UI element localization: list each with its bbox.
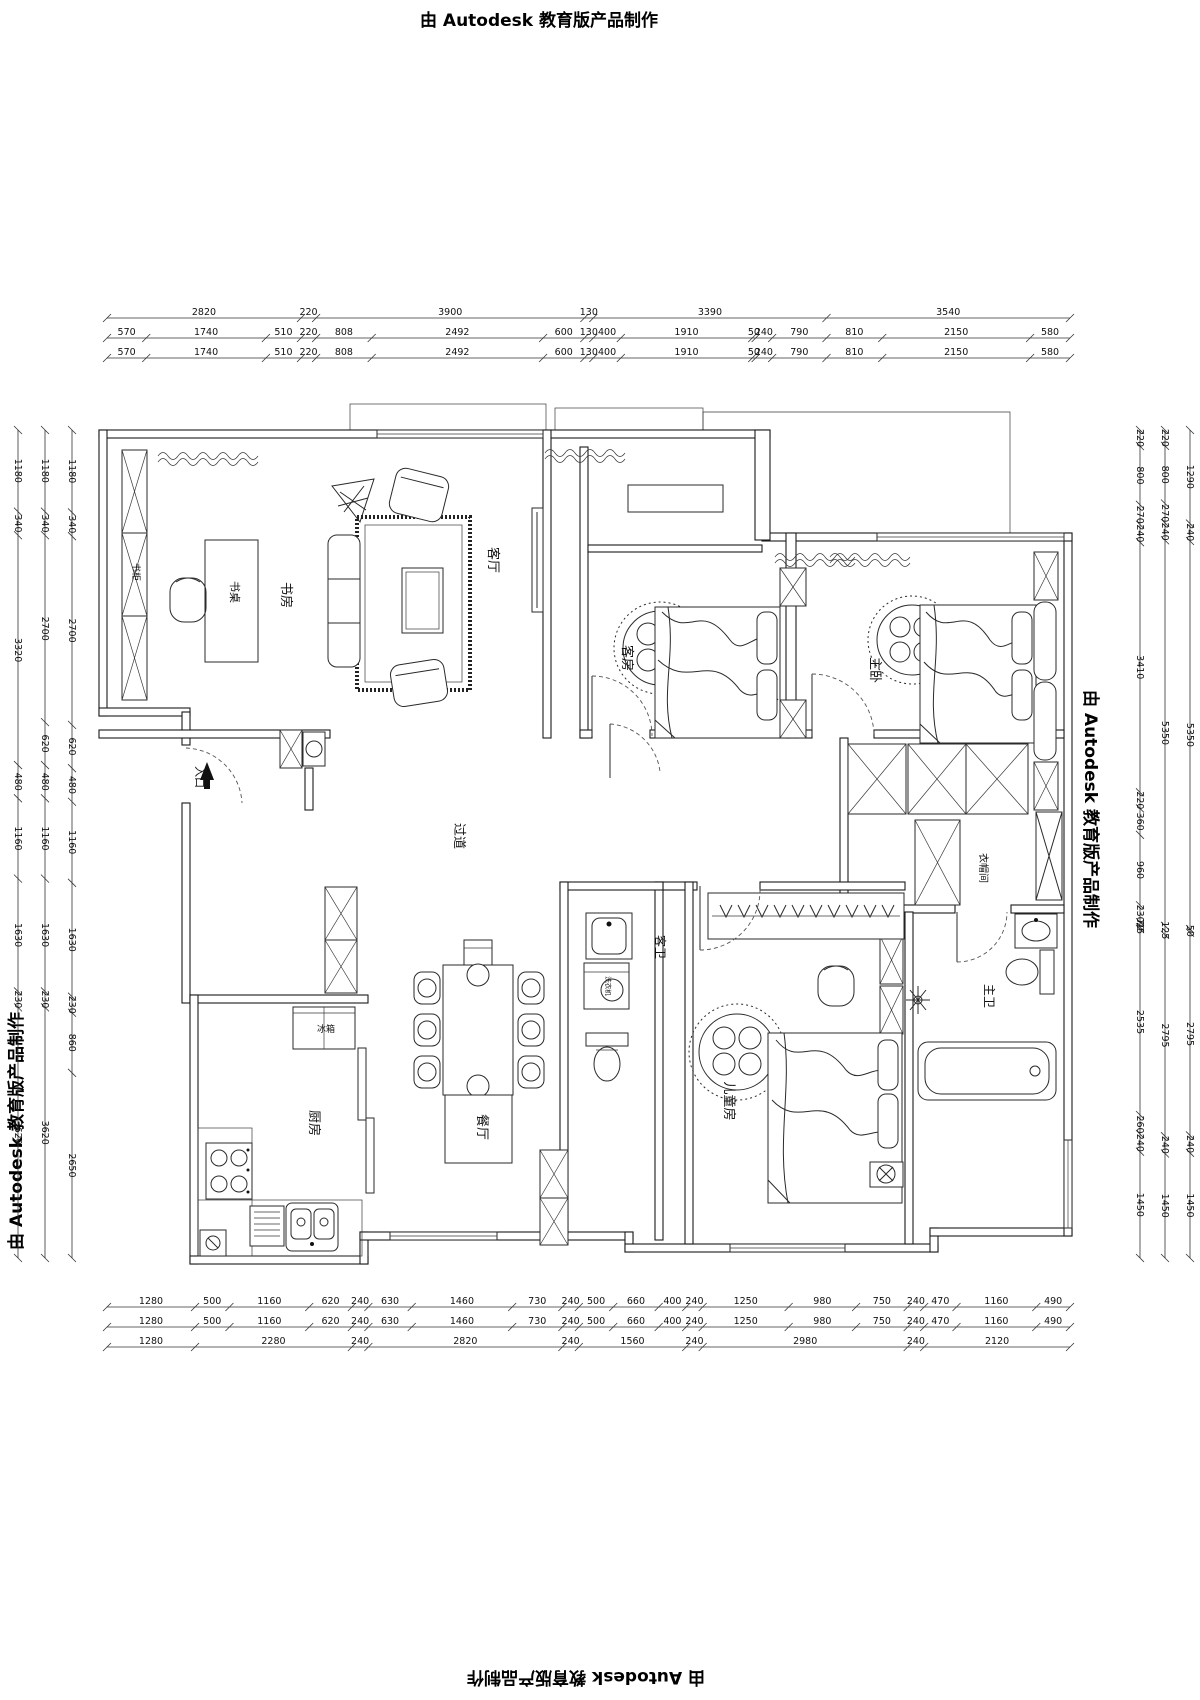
dim-label: 490 xyxy=(1044,1316,1062,1327)
dim-label: 620 xyxy=(39,735,50,753)
dim-label: 240 xyxy=(351,1296,369,1307)
dim-label: 480 xyxy=(39,773,50,791)
dim-label: 1910 xyxy=(674,327,698,338)
dim-label: 1250 xyxy=(734,1296,758,1307)
dim-label: 125 xyxy=(1159,921,1170,939)
dim-label: 2795 xyxy=(1159,1023,1170,1047)
dim-label: 1450 xyxy=(1159,1194,1170,1218)
dim-label: 400 xyxy=(663,1316,681,1327)
dim-label: 360 xyxy=(1134,813,1145,831)
dim-label: 240 xyxy=(562,1336,580,1347)
dimension-chain-4: 1280500116062024063014607302405006604002… xyxy=(103,1316,1074,1331)
dim-label: 470 xyxy=(931,1296,949,1307)
dim-label: 1180 xyxy=(39,459,50,483)
dim-label: 630 xyxy=(381,1296,399,1307)
room-label-desk: 书桌 xyxy=(228,581,241,603)
dim-label: 490 xyxy=(1044,1296,1062,1307)
dim-label: 240 xyxy=(1159,523,1170,541)
corner-unit xyxy=(200,1230,226,1256)
dim-label: 960 xyxy=(1134,861,1145,879)
dim-label: 1280 xyxy=(139,1296,163,1307)
dim-label: 260 xyxy=(1134,1115,1145,1133)
room-label-washer: 洗衣机 xyxy=(604,976,613,996)
dim-label: 220 xyxy=(1134,791,1145,809)
dim-label: 400 xyxy=(598,347,616,358)
bathtub xyxy=(918,1042,1056,1100)
dim-label: 480 xyxy=(12,773,23,791)
dim-label: 220 xyxy=(1134,429,1145,447)
room-label-kids: 儿童房 xyxy=(721,1081,737,1120)
dim-label: 270 xyxy=(1159,504,1170,522)
dim-label: 500 xyxy=(587,1316,605,1327)
dim-label: 2150 xyxy=(944,347,968,358)
dim-label: 240 xyxy=(1134,524,1145,542)
dim-label: 3410 xyxy=(1134,655,1145,679)
dim-label: 810 xyxy=(845,347,863,358)
dim-label: 1460 xyxy=(450,1296,474,1307)
dim-label: 800 xyxy=(1134,466,1145,484)
stove xyxy=(206,1143,252,1199)
kids-room-furniture xyxy=(689,893,904,1203)
dim-label: 2795 xyxy=(1184,1022,1195,1046)
dim-label: 240 xyxy=(755,327,773,338)
dim-label: 220 xyxy=(299,347,317,358)
dim-label: 1180 xyxy=(12,459,23,483)
dim-label: 1450 xyxy=(1134,1193,1145,1217)
bay-outlines xyxy=(350,404,1010,533)
room-label-bookcase: 书柜 xyxy=(130,563,142,581)
floor-plan-canvas: 2820220390013033903540570174051022080824… xyxy=(0,0,1200,1700)
room-label-study: 书房 xyxy=(278,582,294,608)
dim-label: 230 xyxy=(66,996,77,1014)
living-furniture xyxy=(328,466,543,708)
dim-label: 240 xyxy=(562,1296,580,1307)
dim-label: 1180 xyxy=(66,459,77,483)
dim-label: 1250 xyxy=(734,1316,758,1327)
dim-label: 980 xyxy=(813,1316,831,1327)
dim-label: 620 xyxy=(66,737,77,755)
dim-label: 1630 xyxy=(66,928,77,952)
dim-label: 240 xyxy=(1134,1134,1145,1152)
dim-label: 1740 xyxy=(194,347,218,358)
dim-label: 1450 xyxy=(1184,1193,1195,1217)
dim-label: 600 xyxy=(555,347,573,358)
dim-label: 500 xyxy=(587,1296,605,1307)
dim-label: 730 xyxy=(528,1316,546,1327)
dim-label: 2492 xyxy=(445,327,469,338)
dim-label: 620 xyxy=(321,1316,339,1327)
dim-label: 730 xyxy=(528,1296,546,1307)
dim-label: 2650 xyxy=(66,1153,77,1177)
dimension-chain-5: 128022802402820240156024029802402120 xyxy=(103,1336,1074,1351)
dim-label: 130 xyxy=(580,327,598,338)
dim-label: 808 xyxy=(335,347,353,358)
dim-label: 500 xyxy=(203,1316,221,1327)
room-label-guest-bath: 客卫 xyxy=(653,935,668,959)
dimension-chain-3: 1280500116062024063014607302405006604002… xyxy=(103,1296,1074,1311)
dimension-chain-2: 5701740510220808249260013040019105024079… xyxy=(103,347,1074,362)
dim-label: 50 xyxy=(1184,925,1195,937)
dim-label: 510 xyxy=(274,347,292,358)
dim-label: 1740 xyxy=(194,327,218,338)
dim-label: 240 xyxy=(1184,1135,1195,1153)
dim-label: 230 xyxy=(12,990,23,1008)
dim-label: 860 xyxy=(66,1034,77,1052)
dim-label: 580 xyxy=(1041,347,1059,358)
study-furniture xyxy=(170,540,258,662)
washbasin xyxy=(586,913,632,959)
washbasin xyxy=(1015,914,1057,948)
dim-label: 240 xyxy=(562,1316,580,1327)
dim-label: 1160 xyxy=(984,1296,1008,1307)
dimension-chain-10: 220800270240535012527952401450 xyxy=(1159,426,1170,1262)
dim-label: 240 xyxy=(1184,523,1195,541)
kitchen-furniture xyxy=(198,1007,374,1256)
room-label-entry: 入口 xyxy=(193,766,206,788)
dim-label: 480 xyxy=(66,776,77,794)
guest-bath-fixtures xyxy=(584,913,632,1081)
dim-label: 750 xyxy=(873,1296,891,1307)
dim-label: 130 xyxy=(580,307,598,318)
dim-label: 1160 xyxy=(66,830,77,854)
dim-label: 470 xyxy=(931,1316,949,1327)
dim-label: 240 xyxy=(907,1336,925,1347)
dim-label: 220 xyxy=(1159,429,1170,447)
dim-label: 240 xyxy=(907,1296,925,1307)
sliding-door xyxy=(358,1048,374,1193)
dimension-chain-1: 5701740510220808249260013040019105024079… xyxy=(103,327,1074,342)
dim-label: 620 xyxy=(321,1296,339,1307)
room-label-guest: 客房 xyxy=(619,645,635,671)
wardrobe xyxy=(708,893,904,939)
dimension-chain-11: 129024053505027952401450 xyxy=(1184,426,1195,1262)
dim-label: 130 xyxy=(580,347,598,358)
hatch-boxes xyxy=(122,450,1058,1245)
dim-label: 580 xyxy=(1041,327,1059,338)
master-bath-fixtures xyxy=(906,914,1057,1100)
dim-label: 400 xyxy=(663,1296,681,1307)
dim-label: 3390 xyxy=(698,307,722,318)
dim-label: 510 xyxy=(274,327,292,338)
dim-label: 2700 xyxy=(39,617,50,641)
sink xyxy=(286,1203,338,1251)
dim-label: 240 xyxy=(685,1336,703,1347)
toilet xyxy=(586,1033,628,1081)
dim-label: 3620 xyxy=(12,1121,23,1145)
dim-label: 1160 xyxy=(39,826,50,850)
room-label-living: 客厅 xyxy=(485,547,501,573)
dim-label: 750 xyxy=(873,1316,891,1327)
room-label-master: 主卧 xyxy=(867,657,882,683)
dim-label: 630 xyxy=(381,1316,399,1327)
room-label-master-bath: 主卫 xyxy=(982,984,996,1008)
room-label-fridge: 冰箱 xyxy=(317,1023,335,1035)
room-label-dining: 餐厅 xyxy=(474,1114,490,1140)
dim-label: 1630 xyxy=(39,923,50,947)
dim-label: 340 xyxy=(66,515,77,533)
dim-label: 1630 xyxy=(12,923,23,947)
dim-label: 25 xyxy=(1134,922,1145,934)
dimension-chain-7: 11803402700620480116016302303620 xyxy=(39,426,50,1262)
dim-label: 570 xyxy=(118,347,136,358)
dim-label: 240 xyxy=(351,1336,369,1347)
dim-label: 240 xyxy=(685,1316,703,1327)
dim-label: 1280 xyxy=(139,1316,163,1327)
dim-label: 800 xyxy=(1159,466,1170,484)
room-label-corridor: 过道 xyxy=(451,823,466,849)
dim-label: 2980 xyxy=(793,1336,817,1347)
dim-label: 240 xyxy=(1159,1136,1170,1154)
dim-label: 1290 xyxy=(1184,465,1195,489)
dim-label: 1160 xyxy=(984,1316,1008,1327)
dim-label: 1280 xyxy=(139,1336,163,1347)
dim-label: 660 xyxy=(627,1316,645,1327)
dim-label: 1910 xyxy=(674,347,698,358)
dim-label: 1160 xyxy=(12,826,23,850)
dim-label: 5350 xyxy=(1184,723,1195,747)
dim-label: 2820 xyxy=(192,307,216,318)
dimension-chain-6: 11803402700620480116016302308602650 xyxy=(66,426,77,1262)
dim-label: 2150 xyxy=(944,327,968,338)
dim-label: 570 xyxy=(118,327,136,338)
guest-balcony-cabinet xyxy=(628,485,723,512)
dim-label: 3320 xyxy=(12,638,23,662)
dim-label: 340 xyxy=(12,514,23,532)
dimension-chain-8: 11803403320480116016302303620 xyxy=(12,426,23,1262)
dim-label: 1460 xyxy=(450,1316,474,1327)
dim-label: 2280 xyxy=(261,1336,285,1347)
dim-label: 2700 xyxy=(66,618,77,642)
dim-label: 790 xyxy=(790,347,808,358)
dim-label: 2535 xyxy=(1134,1010,1145,1034)
dim-label: 660 xyxy=(627,1296,645,1307)
cutting-board xyxy=(250,1206,284,1246)
toilet xyxy=(1006,950,1054,994)
dim-label: 3900 xyxy=(438,307,462,318)
guest-bed xyxy=(614,602,780,738)
dim-label: 5350 xyxy=(1159,721,1170,745)
dim-label: 240 xyxy=(907,1316,925,1327)
dim-label: 240 xyxy=(351,1316,369,1327)
room-label-cloak: 衣帽间 xyxy=(977,853,990,883)
dim-label: 270 xyxy=(1134,506,1145,524)
dim-label: 400 xyxy=(598,327,616,338)
dim-label: 600 xyxy=(555,327,573,338)
dim-label: 220 xyxy=(299,307,317,318)
dim-label: 1160 xyxy=(257,1316,281,1327)
dim-label: 230 xyxy=(39,990,50,1008)
dim-label: 1560 xyxy=(620,1336,644,1347)
dim-label: 2120 xyxy=(985,1336,1009,1347)
dim-label: 1160 xyxy=(257,1296,281,1307)
dim-label: 3540 xyxy=(936,307,960,318)
dim-label: 810 xyxy=(845,327,863,338)
dim-label: 3620 xyxy=(39,1121,50,1145)
room-label-kitchen: 厨房 xyxy=(306,1110,322,1136)
dimension-chain-9: 2208002702403410220360960230702525352602… xyxy=(1134,426,1145,1262)
dim-label: 790 xyxy=(790,327,808,338)
dim-label: 980 xyxy=(813,1296,831,1307)
dim-label: 808 xyxy=(335,327,353,338)
dim-label: 240 xyxy=(685,1296,703,1307)
floorplan-page: 由 Autodesk 教育版产品制作 由 Autodesk 教育版产品制作 由 … xyxy=(0,0,1200,1700)
dim-label: 2820 xyxy=(453,1336,477,1347)
dim-label: 340 xyxy=(39,514,50,532)
dim-label: 500 xyxy=(203,1296,221,1307)
dim-label: 240 xyxy=(755,347,773,358)
dim-label: 220 xyxy=(299,327,317,338)
dimension-chain-0: 2820220390013033903540 xyxy=(103,307,1074,322)
dim-label: 2492 xyxy=(445,347,469,358)
